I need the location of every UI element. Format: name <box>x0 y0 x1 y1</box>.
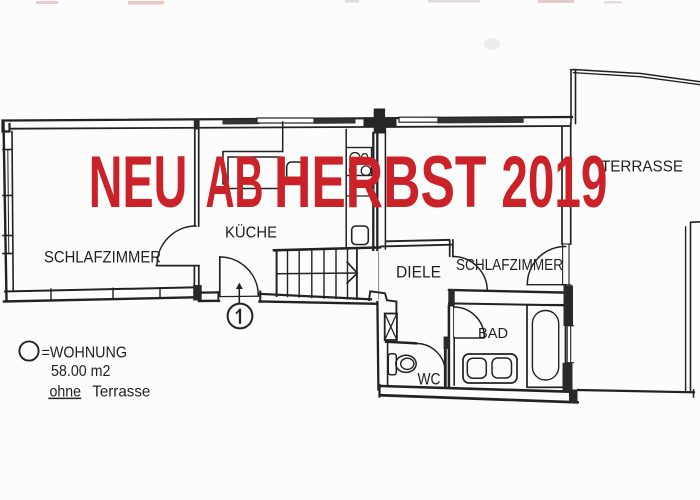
svg-text:NEU: NEU <box>89 142 188 223</box>
svg-text:=WOHNUNG: =WOHNUNG <box>42 345 128 362</box>
svg-text:SCHLAFZIMMER: SCHLAFZIMMER <box>456 257 563 274</box>
svg-text:BAD: BAD <box>478 325 508 342</box>
svg-text:HERBST: HERBST <box>274 142 487 223</box>
svg-text:DIELE: DIELE <box>396 263 441 281</box>
svg-text:TERRASSE: TERRASSE <box>601 159 683 176</box>
svg-text:Terrasse: Terrasse <box>92 384 150 401</box>
svg-text:KÜCHE: KÜCHE <box>225 224 277 242</box>
svg-text:AB: AB <box>206 142 264 223</box>
svg-text:58.00 m2: 58.00 m2 <box>51 363 111 380</box>
svg-text:WC: WC <box>418 371 441 389</box>
svg-text:2019: 2019 <box>501 142 607 223</box>
svg-text:SCHLAFZIMMER: SCHLAFZIMMER <box>44 248 161 266</box>
